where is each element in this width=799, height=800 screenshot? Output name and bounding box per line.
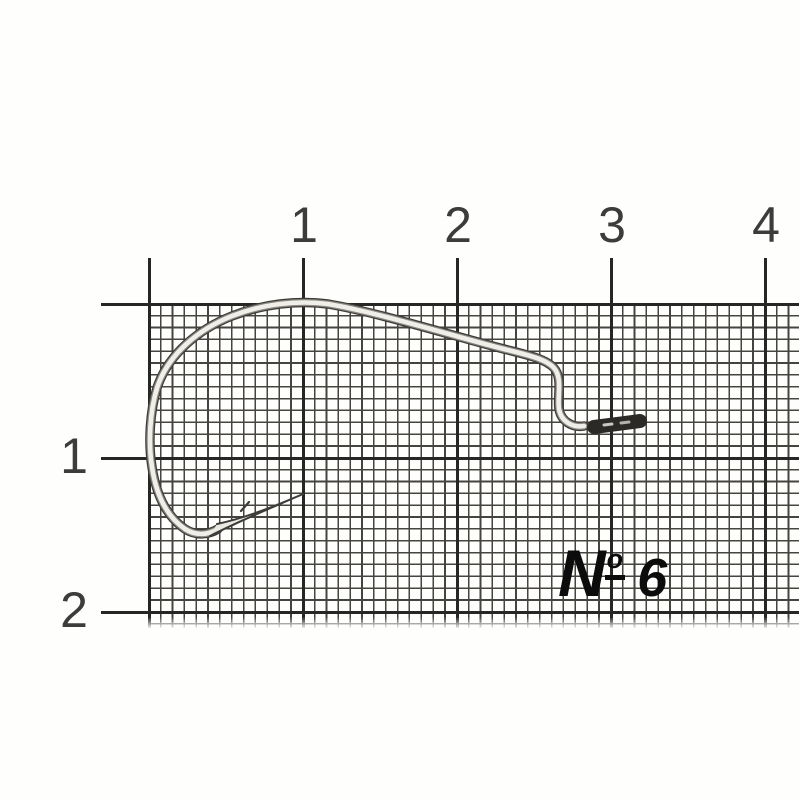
hook-wire-mid	[150, 303, 584, 534]
hook-barb	[241, 502, 249, 511]
hook-eye-glint-2	[621, 422, 629, 423]
fishing-hook-image	[0, 0, 799, 800]
numero-sign-o: o	[605, 546, 626, 580]
hook-point	[210, 494, 303, 536]
hook-size-label: N o 6	[558, 540, 667, 606]
numero-sign-n: N	[558, 540, 606, 606]
hook-size-value: 6	[637, 551, 667, 605]
hook-eye	[594, 421, 640, 427]
hook-wire-outline	[150, 303, 584, 534]
product-photo: 1 2 3 4 1 2 N o 6	[0, 0, 799, 800]
hook-eye-glint	[604, 424, 612, 425]
hook-wire-core	[150, 303, 584, 534]
fishing-hook	[150, 303, 640, 537]
